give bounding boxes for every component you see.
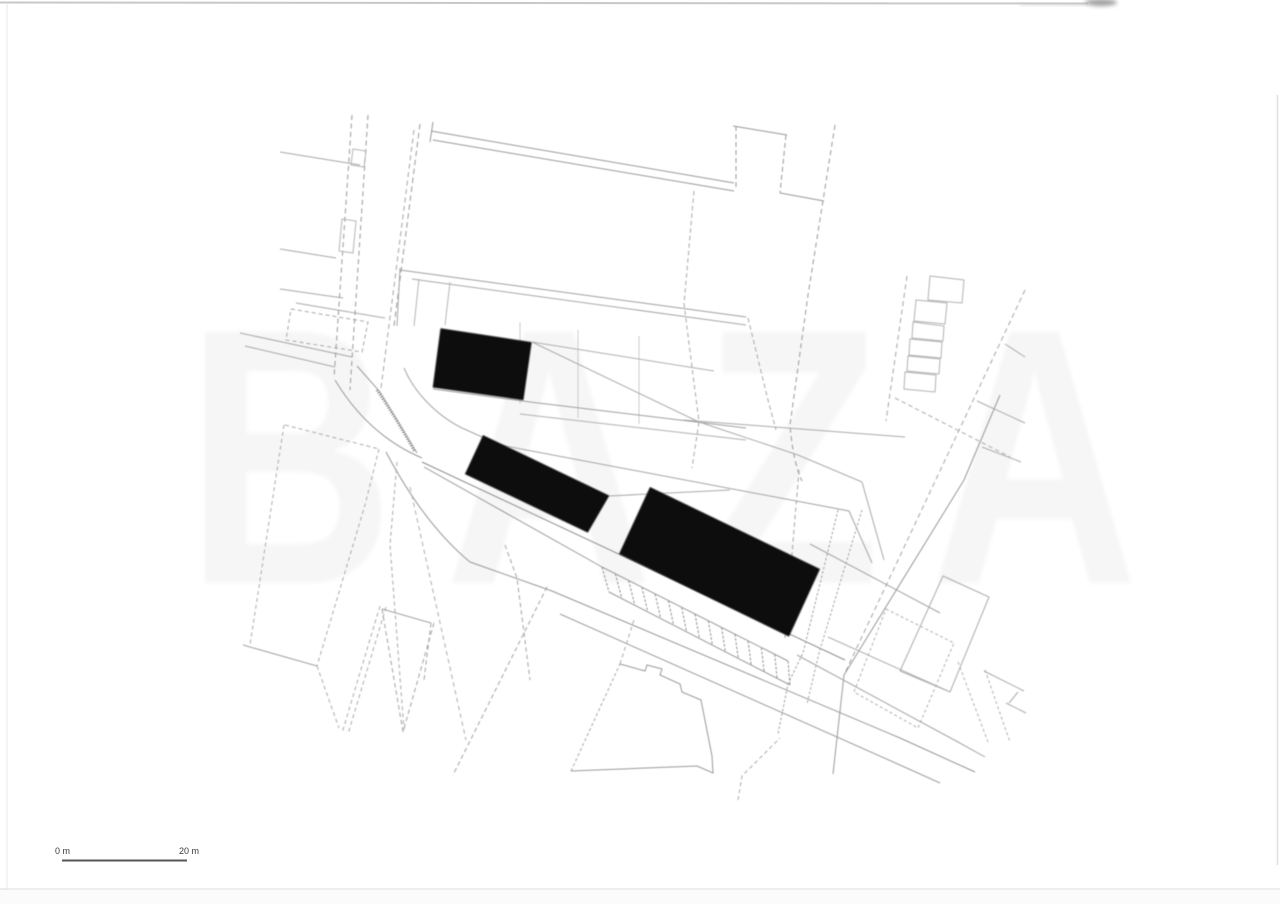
svg-text:20 m: 20 m xyxy=(179,846,199,856)
svg-text:0 m: 0 m xyxy=(55,846,70,856)
